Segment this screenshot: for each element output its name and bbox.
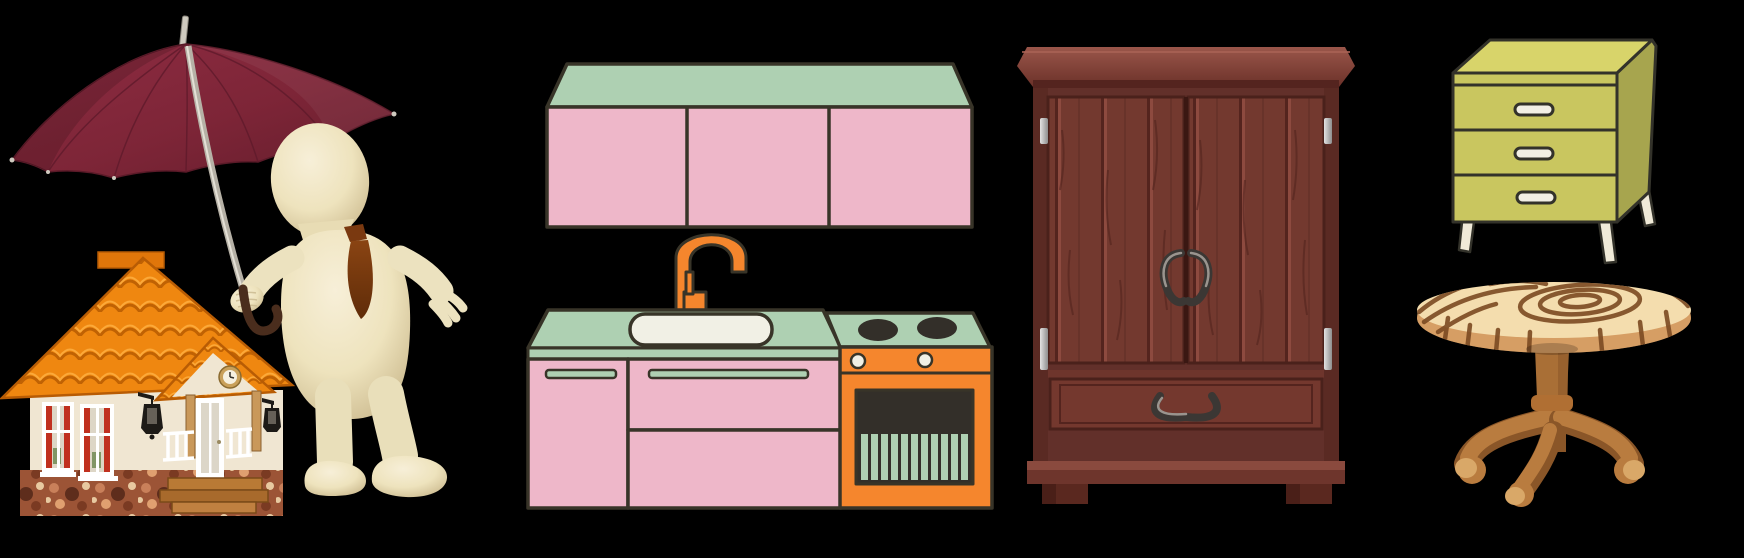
wardrobe-doors (1040, 97, 1332, 370)
top-underside-shadow (1526, 343, 1578, 355)
faucet-lever (686, 272, 693, 294)
furniture-collage-canvas (0, 0, 1744, 558)
burner-left (858, 319, 898, 341)
wall-cabinet-front (547, 107, 972, 227)
wall-cabinet (547, 64, 972, 227)
oven-rack (861, 434, 968, 480)
figure-right-leg (333, 396, 335, 462)
stove-knob (918, 353, 932, 367)
wardrobe-drawer (1048, 370, 1324, 429)
sink-counter (528, 310, 841, 359)
wardrobe-door-left (1048, 97, 1184, 363)
door-gap (1184, 97, 1188, 363)
porch-clock (219, 366, 241, 388)
foot-shadow (1286, 484, 1300, 504)
sink-basin (630, 314, 772, 345)
stove (826, 313, 992, 508)
dresser-top (1453, 40, 1652, 73)
drawer-rail (1048, 370, 1324, 378)
base-cabinet (528, 359, 841, 508)
pedestal-collar (1531, 395, 1573, 411)
wardrobe-door-right (1188, 97, 1324, 363)
plinth-top (1027, 461, 1345, 470)
wardrobe (1017, 47, 1355, 504)
cornice-underside (1033, 80, 1339, 88)
burner-right (917, 317, 957, 339)
base-cabinet-drawer-bottom (628, 430, 841, 508)
stove-knob (851, 354, 865, 368)
foot-shadow (1042, 484, 1056, 504)
base-cabinet-door (528, 359, 628, 508)
dresser-handle-3 (1517, 192, 1555, 203)
porch-post-right (252, 391, 261, 451)
dresser-handle-2 (1515, 148, 1553, 159)
plinth (1027, 470, 1345, 484)
drawer-face (1050, 379, 1322, 429)
window-left (40, 402, 76, 477)
porch-steps (160, 478, 268, 513)
drawer-handle (649, 370, 808, 378)
door-handle (546, 370, 616, 378)
dresser-leg-front-left (1459, 222, 1474, 252)
figure-left-leg (386, 394, 400, 456)
stove-cooktop (826, 313, 990, 347)
roof-ridge-cap (98, 252, 164, 268)
wall-cabinet-top (547, 64, 972, 107)
door-knob (217, 440, 221, 444)
dresser-handle-1 (1515, 104, 1553, 115)
window-right (78, 404, 118, 481)
